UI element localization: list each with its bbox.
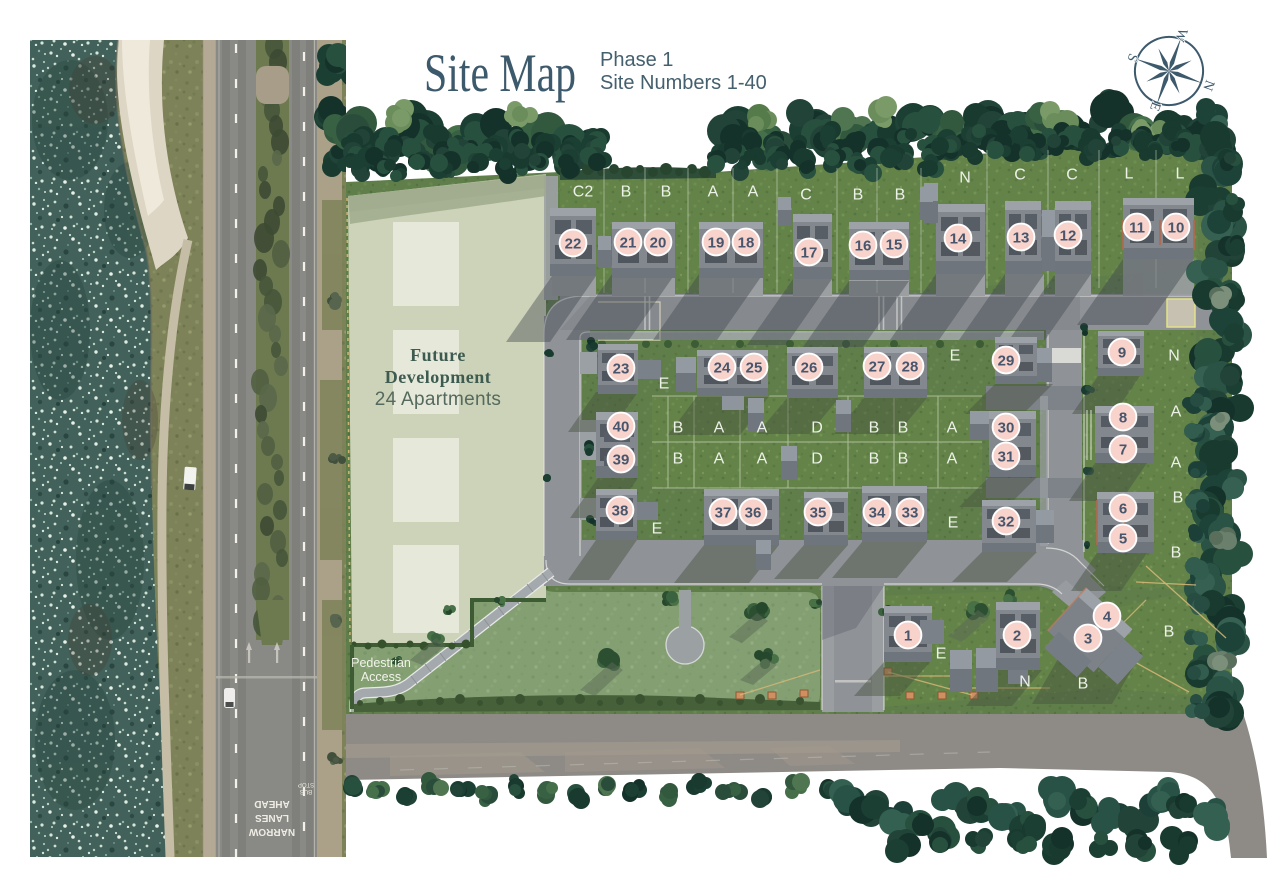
svg-text:L: L (1125, 166, 1134, 183)
svg-text:C2: C2 (573, 184, 594, 201)
svg-text:E: E (936, 646, 947, 663)
svg-text:E: E (948, 515, 959, 532)
svg-text:A: A (748, 184, 759, 201)
svg-text:N: N (959, 170, 971, 187)
svg-text:15: 15 (886, 236, 903, 253)
svg-text:9: 9 (1118, 344, 1126, 361)
svg-text:39: 39 (613, 451, 630, 468)
svg-text:B: B (895, 187, 906, 204)
svg-text:34: 34 (869, 504, 886, 521)
svg-text:A: A (714, 420, 725, 437)
svg-text:Site Map: Site Map (424, 43, 576, 103)
svg-text:B: B (621, 184, 632, 201)
svg-text:37: 37 (715, 504, 732, 521)
svg-text:23: 23 (613, 360, 630, 377)
svg-text:A: A (714, 451, 725, 468)
svg-text:E: E (652, 521, 663, 538)
svg-text:25: 25 (746, 359, 763, 376)
svg-text:E: E (659, 376, 670, 393)
svg-text:36: 36 (745, 504, 762, 521)
svg-text:A: A (947, 451, 958, 468)
svg-text:Development: Development (385, 367, 491, 387)
svg-text:STOP: STOP (298, 781, 314, 787)
svg-text:Site Numbers 1-40: Site Numbers 1-40 (600, 72, 767, 94)
svg-text:30: 30 (998, 419, 1015, 436)
svg-text:24: 24 (714, 359, 731, 376)
svg-text:17: 17 (801, 244, 818, 261)
svg-text:18: 18 (738, 234, 755, 251)
svg-text:12: 12 (1060, 227, 1077, 244)
svg-text:LANES: LANES (255, 812, 289, 823)
svg-text:20: 20 (650, 234, 667, 251)
svg-text:Phase 1: Phase 1 (600, 49, 673, 71)
svg-text:B: B (898, 420, 909, 437)
svg-text:N: N (1019, 674, 1031, 691)
svg-text:B: B (898, 451, 909, 468)
svg-text:A: A (757, 420, 768, 437)
svg-text:N: N (1168, 348, 1180, 365)
svg-text:11: 11 (1129, 219, 1145, 236)
svg-text:A: A (1171, 404, 1182, 421)
svg-text:35: 35 (810, 504, 827, 521)
svg-text:A: A (947, 420, 958, 437)
svg-text:19: 19 (708, 234, 725, 251)
svg-text:21: 21 (620, 234, 637, 251)
svg-text:Pedestrian: Pedestrian (351, 656, 411, 670)
svg-text:B: B (1173, 490, 1184, 507)
svg-text:27: 27 (869, 358, 886, 375)
svg-text:D: D (811, 420, 823, 437)
svg-text:13: 13 (1013, 229, 1030, 246)
svg-text:2: 2 (1013, 627, 1021, 644)
svg-text:6: 6 (1119, 500, 1127, 517)
svg-text:10: 10 (1168, 219, 1185, 236)
svg-text:32: 32 (998, 513, 1015, 530)
svg-text:B: B (869, 420, 880, 437)
svg-text:14: 14 (950, 230, 967, 247)
svg-text:E: E (950, 348, 961, 365)
svg-text:B: B (1078, 676, 1089, 693)
svg-text:1: 1 (904, 627, 912, 644)
svg-text:31: 31 (998, 448, 1015, 465)
svg-text:40: 40 (613, 418, 630, 435)
svg-text:B: B (661, 184, 672, 201)
svg-text:A: A (757, 451, 768, 468)
svg-text:22: 22 (565, 235, 582, 252)
svg-text:A: A (708, 184, 719, 201)
svg-text:5: 5 (1119, 530, 1127, 547)
svg-text:7: 7 (1119, 441, 1127, 458)
svg-text:D: D (811, 451, 823, 468)
svg-text:A: A (1171, 455, 1182, 472)
svg-text:Access: Access (361, 670, 401, 684)
svg-text:3: 3 (1084, 630, 1092, 647)
svg-text:L: L (1176, 166, 1185, 183)
svg-text:24 Apartments: 24 Apartments (375, 389, 501, 410)
svg-text:33: 33 (902, 504, 919, 521)
svg-text:AHEAD: AHEAD (254, 798, 290, 809)
svg-text:Future: Future (410, 345, 466, 365)
svg-text:BUS: BUS (300, 788, 312, 794)
svg-text:C: C (1066, 167, 1078, 184)
svg-text:C: C (1014, 167, 1026, 184)
svg-text:29: 29 (998, 352, 1015, 369)
svg-text:B: B (673, 451, 684, 468)
svg-text:B: B (869, 451, 880, 468)
svg-text:28: 28 (902, 358, 919, 375)
svg-text:B: B (673, 420, 684, 437)
svg-text:NARROW: NARROW (248, 826, 295, 837)
svg-text:B: B (1164, 624, 1175, 641)
svg-text:B: B (853, 187, 864, 204)
svg-text:4: 4 (1103, 608, 1112, 625)
svg-text:26: 26 (801, 359, 818, 376)
svg-text:38: 38 (612, 502, 629, 519)
svg-text:8: 8 (1119, 409, 1127, 426)
svg-text:C: C (800, 187, 812, 204)
svg-text:B: B (1171, 545, 1182, 562)
svg-text:16: 16 (855, 237, 872, 254)
